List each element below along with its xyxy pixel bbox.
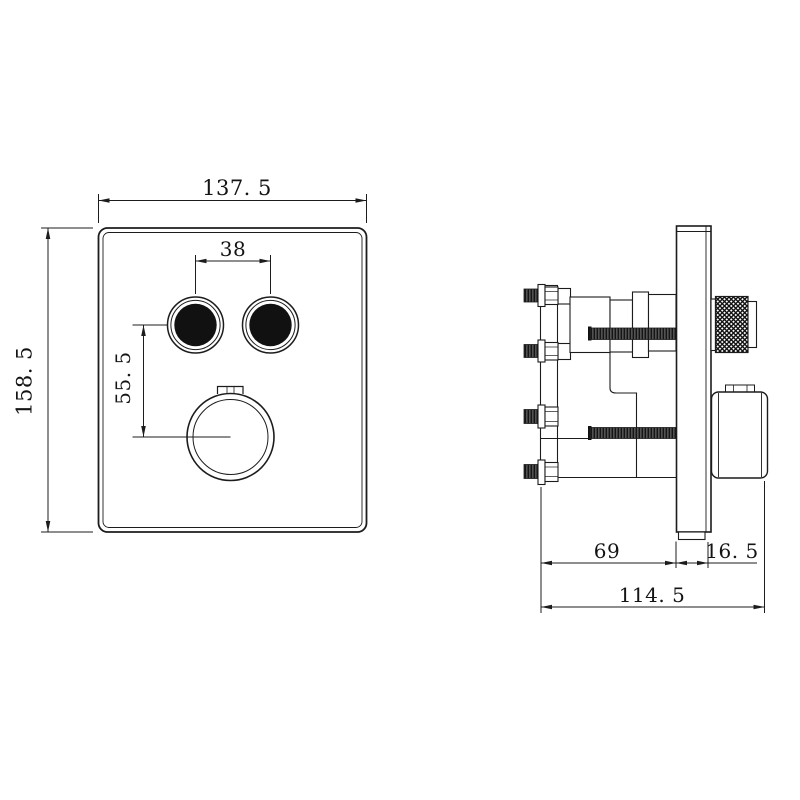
valve-body — [524, 285, 677, 485]
arrow-icon — [196, 259, 207, 264]
side-view: 69 16. 5 114. 5 — [524, 226, 768, 613]
body-step — [610, 353, 637, 478]
arrow-icon — [676, 561, 687, 566]
knurled-grip — [716, 297, 749, 353]
cartridge-housing — [570, 297, 610, 353]
dim-body-depth-label: 69 — [594, 539, 620, 563]
port-thread — [524, 465, 538, 479]
dim-width-label: 137. 5 — [202, 176, 272, 200]
arrow-icon — [46, 228, 51, 239]
dim-plate-thickness-label: 16. 5 — [705, 539, 758, 563]
dim-button-to-knob-label: 55. 5 — [111, 351, 135, 404]
port-thread — [524, 345, 538, 358]
port-nut — [545, 343, 558, 361]
arrow-icon — [541, 605, 552, 610]
button-left — [168, 297, 224, 353]
port-collar — [538, 340, 545, 362]
port-boss-1 — [558, 289, 571, 305]
wall-plate — [677, 226, 712, 540]
port-nut — [545, 463, 558, 482]
dim-plate-thickness: 16. 5 — [676, 539, 759, 568]
button-left-face — [174, 304, 216, 346]
temperature-knob-side — [711, 297, 757, 353]
button-right — [243, 297, 299, 353]
arrow-icon — [141, 426, 146, 437]
port-collar — [538, 405, 545, 428]
mounting-nut — [633, 292, 649, 358]
port-thread — [524, 289, 538, 302]
dim-button-to-knob: 55. 5 — [111, 325, 231, 437]
volume-knob-body — [712, 392, 768, 478]
knob-front-cap — [748, 302, 757, 348]
port-thread — [524, 410, 538, 424]
inlet-port-1 — [524, 285, 558, 307]
dim-button-spacing: 38 — [196, 237, 271, 294]
cartridge-stem — [649, 295, 677, 352]
dim-button-spacing-label: 38 — [220, 237, 246, 261]
faceplate-inner-edge — [103, 233, 362, 528]
button-right-face — [249, 304, 291, 346]
control-knob — [187, 387, 274, 481]
volume-knob-side — [712, 385, 768, 478]
dim-overall-depth-label: 114. 5 — [619, 583, 686, 607]
arrow-icon — [260, 259, 271, 264]
dim-height: 158. 5 — [13, 228, 94, 532]
knob-washer — [711, 299, 716, 351]
threaded-rod-lower — [590, 428, 677, 439]
cartridge-collar — [610, 300, 633, 352]
arrow-icon — [754, 605, 765, 610]
faceplate-outline — [99, 228, 367, 532]
inlet-port-3 — [524, 405, 558, 428]
technical-drawing: 137. 5 158. 5 38 — [0, 0, 800, 800]
dim-width: 137. 5 — [99, 176, 367, 223]
drawing-canvas: 137. 5 158. 5 38 — [0, 0, 800, 800]
front-view: 137. 5 158. 5 38 — [13, 176, 367, 532]
arrow-icon — [356, 198, 367, 203]
arrow-icon — [141, 325, 146, 336]
arrow-icon — [99, 198, 110, 203]
port-collar — [538, 460, 545, 485]
drawing-root: 137. 5 158. 5 38 — [13, 176, 768, 613]
inlet-port-2 — [524, 340, 558, 362]
threaded-rod-upper — [590, 328, 677, 340]
arrow-icon — [541, 561, 552, 566]
manifold-column — [541, 286, 558, 478]
port-nut — [545, 407, 558, 426]
dim-height-label: 158. 5 — [13, 346, 37, 416]
wall-plate-foot — [679, 532, 706, 540]
port-nut — [545, 287, 558, 305]
port-collar — [538, 285, 545, 307]
arrow-icon — [46, 521, 51, 532]
inlet-port-4 — [524, 460, 558, 485]
port-boss-2 — [558, 344, 571, 360]
arrow-icon — [665, 561, 676, 566]
